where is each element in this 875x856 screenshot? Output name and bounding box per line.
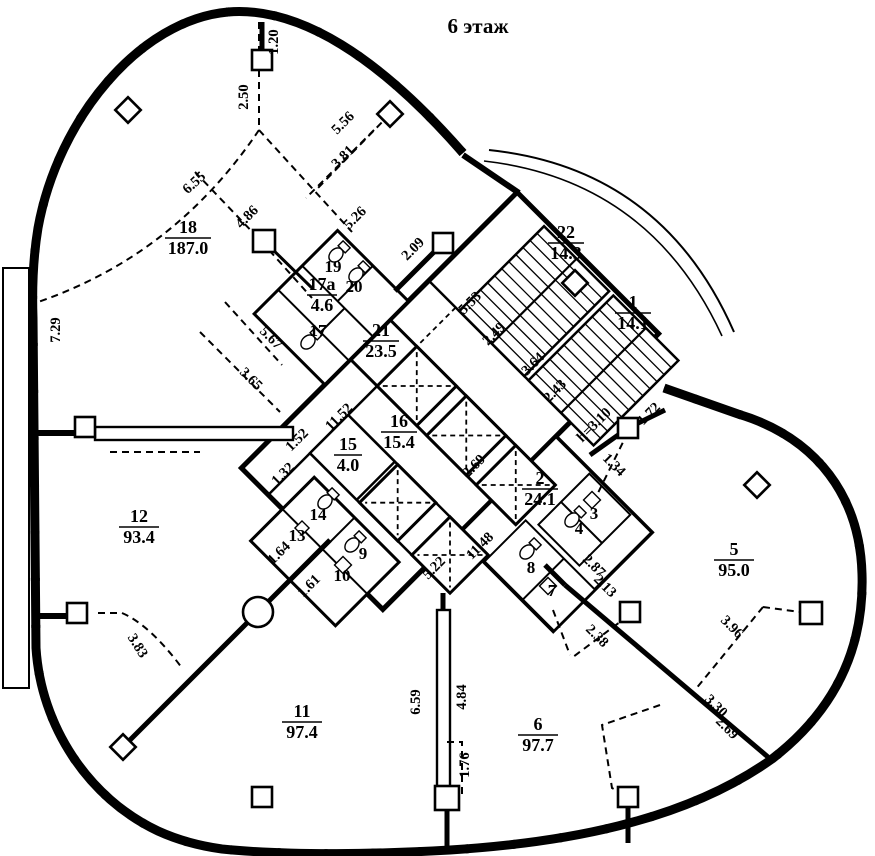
- svg-text:95.0: 95.0: [718, 560, 750, 580]
- dim-2-50: 2.50: [236, 84, 252, 109]
- dim-6-59: 6.59: [408, 689, 424, 714]
- room-label-19: 19: [325, 257, 342, 276]
- dim-4-86: 4.86: [233, 203, 262, 232]
- dim-6-55: 6.55: [180, 169, 210, 198]
- floor-plan-svg: 6 этаж 18187.0 17а4.6 2123.5 2214.3 114.…: [0, 0, 875, 856]
- room-label-7: 7: [548, 581, 557, 600]
- svg-text:1: 1: [629, 292, 638, 312]
- svg-text:15: 15: [339, 434, 357, 454]
- room-label-8: 8: [527, 558, 536, 577]
- balcony-outline: [3, 268, 29, 688]
- svg-text:97.7: 97.7: [522, 735, 554, 755]
- room-label-9: 9: [359, 544, 368, 563]
- dim-4-84: 4.84: [454, 684, 470, 709]
- svg-text:17а: 17а: [309, 274, 336, 294]
- svg-text:4.0: 4.0: [337, 455, 360, 475]
- svg-text:23.5: 23.5: [365, 341, 397, 361]
- svg-text:2: 2: [536, 468, 545, 488]
- svg-text:21: 21: [372, 320, 390, 340]
- svg-text:24.1: 24.1: [524, 489, 556, 509]
- svg-text:93.4: 93.4: [123, 527, 155, 547]
- dim-3-65: 3.65: [236, 365, 265, 394]
- svg-text:15.4: 15.4: [383, 432, 415, 452]
- room-label-12: 1293.4: [119, 506, 159, 547]
- svg-text:18: 18: [179, 217, 197, 237]
- svg-text:6: 6: [534, 714, 543, 734]
- room-label-13: 13: [289, 526, 306, 545]
- dim-1-76: 1.76: [457, 752, 473, 777]
- dim-1-34: 1.34: [599, 451, 628, 480]
- dim-1-20: 1.20: [266, 29, 282, 54]
- room-label-14: 14: [310, 505, 328, 524]
- dim-3-96: 3.96: [717, 613, 746, 642]
- svg-text:11: 11: [293, 701, 310, 721]
- svg-text:4.6: 4.6: [311, 295, 334, 315]
- svg-text:187.0: 187.0: [168, 238, 209, 258]
- dim-7-29: 7.29: [48, 317, 64, 342]
- svg-text:14.3: 14.3: [550, 243, 582, 263]
- dim-5-26: 5.26: [341, 204, 370, 233]
- svg-text:97.4: 97.4: [286, 722, 318, 742]
- room-label-20: 20: [346, 277, 363, 296]
- svg-text:5: 5: [730, 539, 739, 559]
- room-label-4: 4: [575, 519, 584, 538]
- room-label-5: 595.0: [714, 539, 754, 580]
- svg-text:22: 22: [557, 222, 575, 242]
- room-label-17: 17: [310, 321, 328, 340]
- dim-3-81: 3.81: [329, 143, 358, 172]
- room-label-10: 10: [334, 566, 351, 585]
- dim-5-56: 5.56: [329, 109, 358, 138]
- drawing-title: 6 этаж: [447, 14, 509, 38]
- floor-plan-page: 6 этаж 18187.0 17а4.6 2123.5 2214.3 114.…: [0, 0, 875, 856]
- room-label-3: 3: [590, 504, 599, 523]
- room-label-6: 697.7: [518, 714, 558, 755]
- room-label-17a: 17а4.6: [307, 274, 337, 315]
- svg-text:12: 12: [130, 506, 148, 526]
- room-label-18: 18187.0: [165, 217, 211, 258]
- dim-3-83: 3.83: [124, 631, 151, 661]
- svg-text:14.1: 14.1: [617, 313, 649, 333]
- svg-text:16: 16: [390, 411, 408, 431]
- room-label-11: 1197.4: [282, 701, 322, 742]
- round-column: [243, 597, 273, 627]
